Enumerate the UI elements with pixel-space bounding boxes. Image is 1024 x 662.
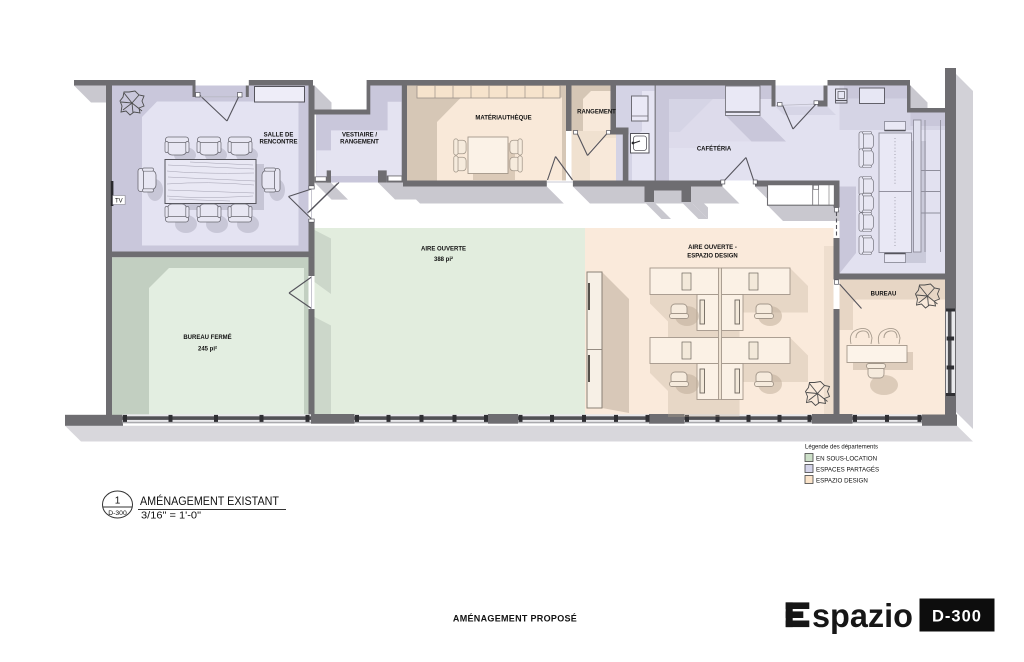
svg-text:RANGEMENT: RANGEMENT bbox=[577, 110, 616, 116]
svg-text:RANGEMENT: RANGEMENT bbox=[340, 140, 379, 146]
svg-text:AMÉNAGEMENT EXISTANT: AMÉNAGEMENT EXISTANT bbox=[140, 495, 279, 508]
svg-text:AMÉNAGEMENT PROPOSÉ: AMÉNAGEMENT PROPOSÉ bbox=[453, 614, 577, 624]
svg-text:AIRE OUVERTE: AIRE OUVERTE bbox=[421, 247, 466, 253]
svg-text:388 pi²: 388 pi² bbox=[434, 256, 453, 263]
svg-text:BUREAU: BUREAU bbox=[871, 292, 897, 298]
svg-text:MATÉRIAUTHÈQUE: MATÉRIAUTHÈQUE bbox=[475, 114, 531, 122]
svg-text:VESTIAIRE /: VESTIAIRE / bbox=[342, 133, 377, 139]
svg-text:BUREAU FERMÉ: BUREAU FERMÉ bbox=[183, 333, 231, 341]
svg-text:TV: TV bbox=[115, 199, 123, 205]
svg-text:3/16" = 1'-0": 3/16" = 1'-0" bbox=[141, 511, 201, 522]
svg-text:SALLE DE: SALLE DE bbox=[264, 133, 294, 139]
svg-text:ESPAZIO DESIGN: ESPAZIO DESIGN bbox=[816, 478, 868, 485]
svg-text:CAFÉTÉRIA: CAFÉTÉRIA bbox=[697, 145, 732, 153]
svg-text:1: 1 bbox=[115, 496, 121, 507]
svg-text:D-300: D-300 bbox=[932, 608, 982, 626]
svg-text:Légende des départements: Légende des départements bbox=[805, 445, 878, 451]
svg-text:245 pi²: 245 pi² bbox=[198, 346, 217, 353]
svg-text:D-300: D-300 bbox=[108, 510, 127, 517]
svg-text:EN SOUS-LOCATION: EN SOUS-LOCATION bbox=[816, 456, 877, 463]
svg-text:ESPAZIO DESIGN: ESPAZIO DESIGN bbox=[687, 254, 738, 260]
svg-text:AIRE OUVERTE -: AIRE OUVERTE - bbox=[688, 245, 737, 251]
svg-text:spazio: spazio bbox=[812, 598, 913, 635]
svg-text:RENCONTRE: RENCONTRE bbox=[259, 140, 297, 146]
svg-text:ESPACES PARTAGÉS: ESPACES PARTAGÉS bbox=[816, 467, 879, 474]
